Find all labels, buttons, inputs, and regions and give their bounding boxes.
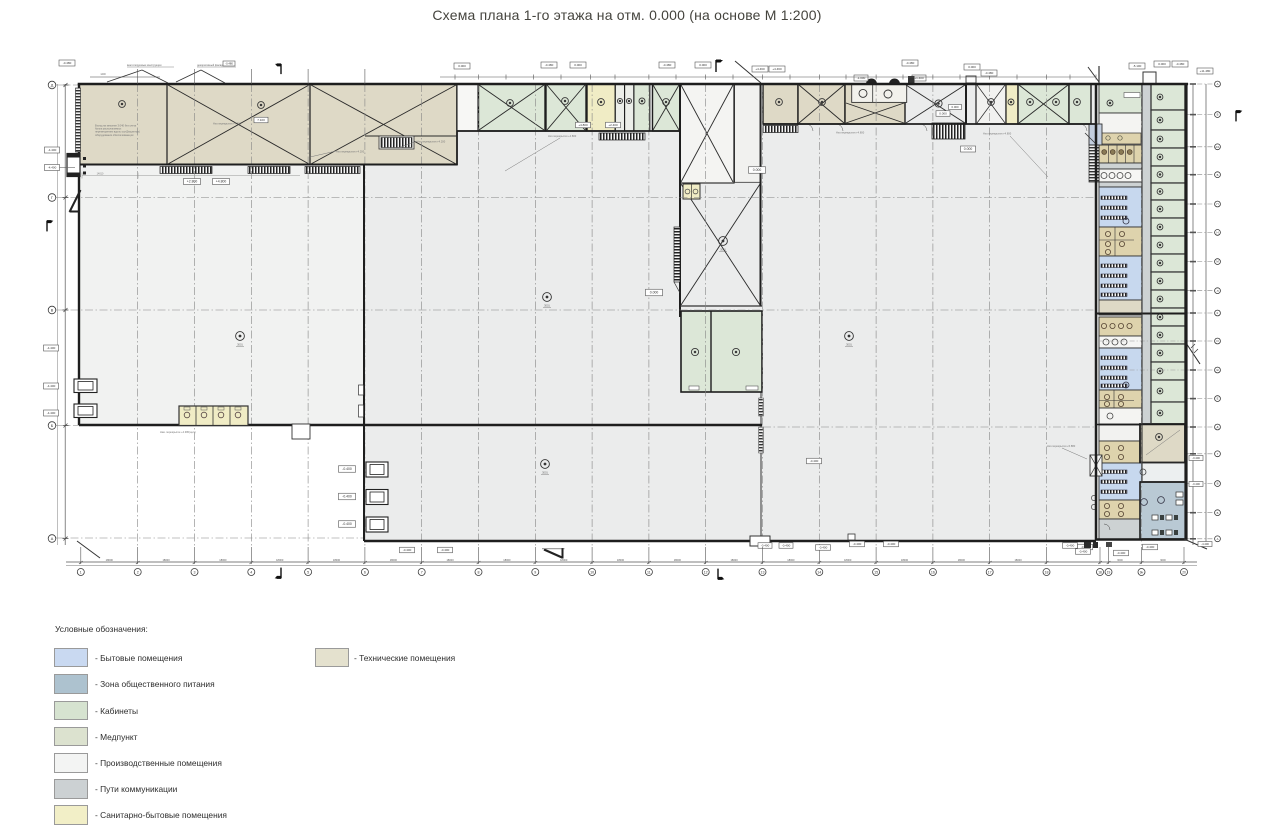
svg-text:-0.480: -0.480 <box>63 61 72 65</box>
svg-text:Б: Б <box>1217 173 1219 177</box>
svg-text:-0.400: -0.400 <box>342 467 352 471</box>
svg-text:Низ перекрытия +4.800: Низ перекрытия +4.800 <box>548 134 577 138</box>
svg-text:Низ перекрытия +4.800: Низ перекрытия +4.800 <box>213 122 242 126</box>
svg-text:А: А <box>51 537 54 541</box>
svg-text:0.000: 0.000 <box>968 65 976 69</box>
svg-text:-0.400: -0.400 <box>403 548 412 552</box>
svg-text:Низ перекрытия +5.880: Низ перекрытия +5.880 <box>1047 444 1076 448</box>
svg-text:-0.400: -0.400 <box>342 495 352 499</box>
svg-text:Е: Е <box>1217 397 1219 401</box>
svg-text:-0.400: -0.400 <box>761 544 770 548</box>
svg-text:А: А <box>1217 537 1219 541</box>
svg-text:18000: 18000 <box>901 558 909 562</box>
svg-text:3001: 3001 <box>544 304 550 308</box>
svg-text:7: 7 <box>421 570 423 574</box>
svg-text:18000: 18000 <box>730 558 738 562</box>
svg-text:Д: Д <box>1217 425 1219 429</box>
svg-text:Низ перекрытия +4.800: Низ перекрытия +4.800 <box>836 131 865 135</box>
svg-text:18000: 18000 <box>106 558 114 562</box>
svg-text:Низ перекрытия +4.800: Низ перекрытия +4.800 <box>983 132 1012 136</box>
svg-text:6: 6 <box>364 570 366 574</box>
svg-text:0.000: 0.000 <box>939 112 947 116</box>
svg-text:-0.400: -0.400 <box>819 546 828 550</box>
svg-text:-0.480: -0.480 <box>663 63 672 67</box>
svg-text:9н: 9н <box>1140 570 1144 574</box>
svg-text:Нав. перекрытие +4.380(щит): Нав. перекрытие +4.380(щит) <box>160 430 196 434</box>
svg-text:14010: 14010 <box>97 173 104 176</box>
svg-text:13: 13 <box>761 570 765 574</box>
svg-text:-0.400: -0.400 <box>782 544 791 548</box>
svg-text:6000: 6000 <box>1117 559 1123 562</box>
svg-text:-0.400: -0.400 <box>1192 482 1200 486</box>
svg-text:-5.100: -5.100 <box>1133 64 1142 68</box>
svg-text:Низ перекрытия +4.200: Низ перекрытия +4.200 <box>336 150 365 154</box>
svg-text:0.000: 0.000 <box>699 63 707 67</box>
svg-text:18: 18 <box>1045 570 1049 574</box>
svg-text:-0.400: -0.400 <box>342 522 352 526</box>
svg-text:Д: Д <box>51 84 54 88</box>
svg-text:-4.400: -4.400 <box>47 411 56 415</box>
svg-text:16: 16 <box>931 570 935 574</box>
svg-text:3001: 3001 <box>720 248 726 252</box>
svg-text:1400: 1400 <box>100 73 106 76</box>
svg-text:+11.480: +11.480 <box>1200 69 1211 73</box>
svg-text:18000: 18000 <box>503 558 511 562</box>
svg-text:10: 10 <box>590 570 594 574</box>
svg-text:В: В <box>51 309 54 313</box>
svg-text:+4.460: +4.460 <box>772 67 782 71</box>
svg-text:П: П <box>1216 202 1218 206</box>
svg-text:В: В <box>1217 482 1219 486</box>
svg-text:18000: 18000 <box>674 558 682 562</box>
svg-text:17: 17 <box>988 570 992 574</box>
svg-text:Н: Н <box>1216 231 1218 235</box>
svg-text:+4.800: +4.800 <box>578 123 588 127</box>
svg-text:Б: Б <box>1217 113 1219 117</box>
svg-text:-0.400: -0.400 <box>1117 551 1126 555</box>
svg-text:Б: Б <box>1217 511 1219 515</box>
svg-text:Л: Л <box>1217 289 1219 293</box>
svg-text:0.000: 0.000 <box>458 64 466 68</box>
svg-text:А/1: А/1 <box>1215 145 1220 149</box>
svg-text:-0.480: -0.480 <box>906 61 915 65</box>
svg-text:18000: 18000 <box>787 558 795 562</box>
svg-text:4: 4 <box>250 570 252 574</box>
svg-text:-0.400: -0.400 <box>1146 545 1155 549</box>
svg-text:-0.400: -0.400 <box>887 542 896 546</box>
svg-text:18000: 18000 <box>617 558 625 562</box>
svg-text:+2.800: +2.800 <box>187 180 198 184</box>
svg-text:-4.400: -4.400 <box>1201 542 1209 546</box>
svg-text:-0.480: -0.480 <box>985 71 994 75</box>
svg-text:-0.400: -0.400 <box>1192 456 1200 460</box>
svg-text:-0.480: -0.480 <box>545 63 554 67</box>
svg-text:0.000: 0.000 <box>1158 62 1166 66</box>
svg-text:-4.400: -4.400 <box>48 148 57 152</box>
svg-text:+4.460: +4.460 <box>755 67 765 71</box>
svg-text:7.100: 7.100 <box>257 118 265 122</box>
svg-text:8: 8 <box>478 570 480 574</box>
svg-text:-0.400: -0.400 <box>1066 544 1075 548</box>
svg-text:9: 9 <box>534 570 536 574</box>
svg-text:20: 20 <box>1182 570 1186 574</box>
svg-text:Низ перекрытия +4.200: Низ перекрытия +4.200 <box>417 140 446 144</box>
svg-text:-0.400: -0.400 <box>810 459 819 463</box>
svg-text:-4.400: -4.400 <box>48 166 57 170</box>
svg-text:0.000: 0.000 <box>650 291 659 295</box>
svg-text:18000: 18000 <box>276 558 284 562</box>
svg-text:18000: 18000 <box>446 558 454 562</box>
svg-text:3001: 3001 <box>846 343 852 347</box>
svg-text:3001: 3001 <box>542 471 548 475</box>
svg-text:А: А <box>1217 82 1219 86</box>
svg-text:19: 19 <box>1107 570 1111 574</box>
svg-text:18000: 18000 <box>333 558 341 562</box>
svg-text:14: 14 <box>817 570 821 574</box>
svg-text:18: 18 <box>1098 570 1102 574</box>
svg-text:9000: 9000 <box>1160 559 1166 562</box>
svg-text:вентилируемые конструкции: вентилируемые конструкции <box>127 64 162 67</box>
svg-text:18000: 18000 <box>1014 558 1022 562</box>
svg-text:0.000: 0.000 <box>753 168 762 172</box>
svg-text:18000: 18000 <box>958 558 966 562</box>
svg-text:-0.400: -0.400 <box>441 548 450 552</box>
svg-text:Ж: Ж <box>1216 368 1219 372</box>
svg-text:0.000: 0.000 <box>964 147 973 151</box>
svg-text:-0.400: -0.400 <box>853 542 862 546</box>
svg-text:-0.480: -0.480 <box>1176 62 1185 66</box>
svg-text:+2.400: +2.400 <box>608 123 618 127</box>
svg-text:1: 1 <box>80 570 82 574</box>
svg-text:оборудования обеспечивающих: оборудования обеспечивающих <box>95 133 134 137</box>
svg-text:18000: 18000 <box>162 558 170 562</box>
svg-text:декоративный фасад: декоративный фасад <box>197 63 223 67</box>
svg-text:И: И <box>1216 339 1218 343</box>
svg-text:18000: 18000 <box>560 558 568 562</box>
svg-text:-4.400: -4.400 <box>47 346 56 350</box>
svg-text:12: 12 <box>704 570 708 574</box>
svg-text:18000: 18000 <box>844 558 852 562</box>
svg-text:18000: 18000 <box>390 558 398 562</box>
svg-text:0.000: 0.000 <box>952 105 959 109</box>
svg-text:-4.400: -4.400 <box>47 384 56 388</box>
svg-text:5: 5 <box>307 570 309 574</box>
svg-text:11: 11 <box>647 570 651 574</box>
svg-text:0.000: 0.000 <box>574 63 582 67</box>
svg-text:Г: Г <box>51 196 53 200</box>
svg-text:+4.800: +4.800 <box>216 180 227 184</box>
svg-text:-0.400: -0.400 <box>1079 550 1088 554</box>
svg-text:3001: 3001 <box>237 343 243 347</box>
svg-text:-0.480: -0.480 <box>225 62 233 66</box>
svg-text:3: 3 <box>194 570 196 574</box>
svg-text:18000: 18000 <box>219 558 227 562</box>
svg-text:2: 2 <box>137 570 139 574</box>
svg-text:15: 15 <box>874 570 878 574</box>
